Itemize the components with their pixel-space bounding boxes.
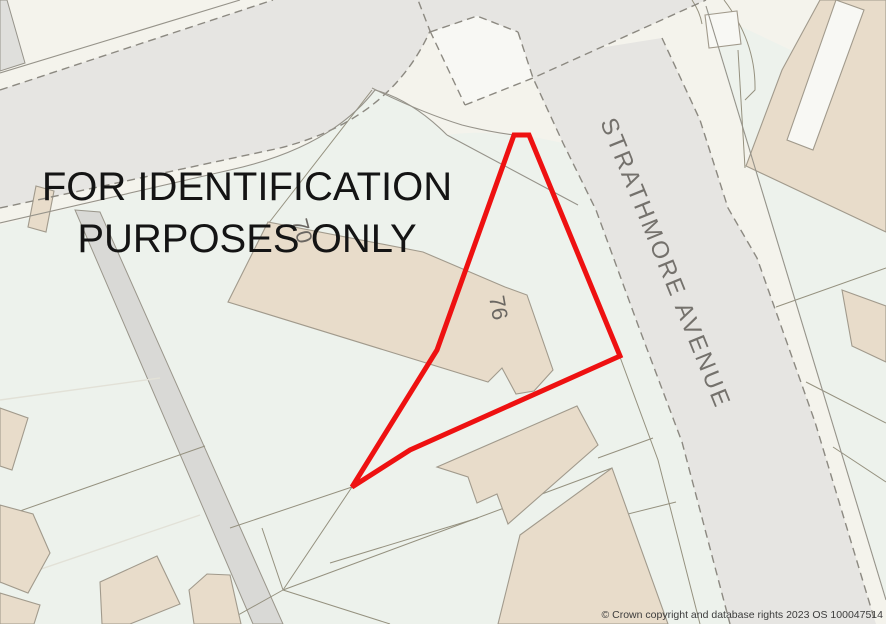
building-north-small	[705, 11, 741, 48]
caption-line-1: FOR IDENTIFICATION	[42, 165, 452, 209]
site-location-plan: 70 76 STRATHMORE AVENUE FOR IDENTIFICATI…	[0, 0, 886, 624]
copyright-attribution: © Crown copyright and database rights 20…	[601, 609, 883, 621]
plot-number-76: 76	[484, 294, 513, 322]
caption-line-2: PURPOSES ONLY	[77, 217, 416, 261]
map-canvas: 70 76 STRATHMORE AVENUE FOR IDENTIFICATI…	[0, 0, 886, 624]
